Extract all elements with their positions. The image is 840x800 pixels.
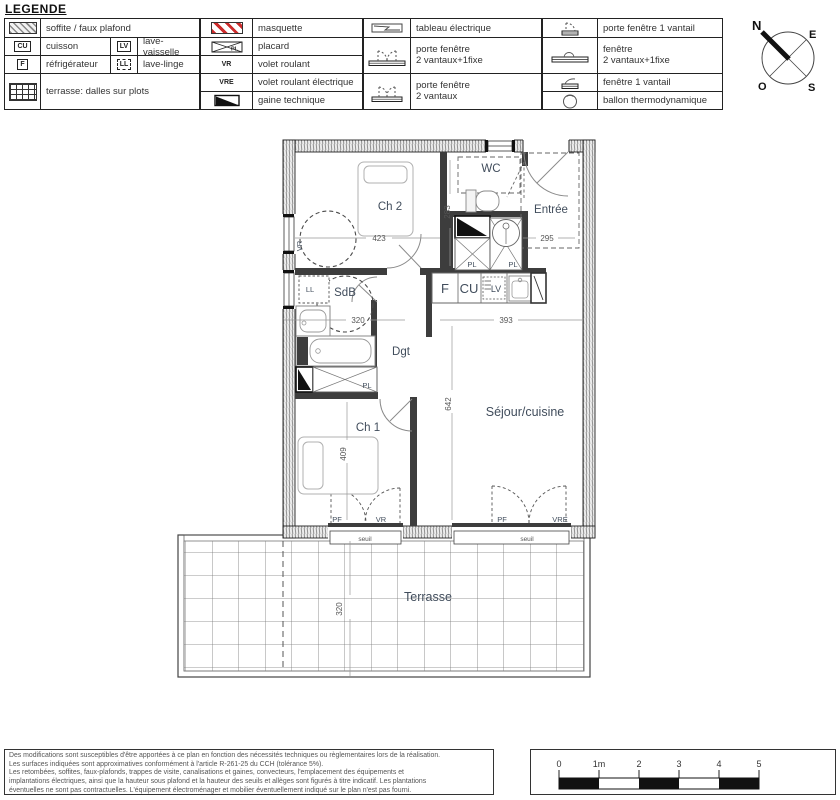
label-text: placard — [258, 41, 289, 52]
tag-f: F — [441, 281, 449, 296]
room-label-terrasse: Terrasse — [404, 590, 452, 604]
tableau-electrique-icon — [364, 19, 411, 38]
legend-label-lave-linge: lave-linge — [138, 56, 200, 74]
legend-table: soffite / faux plafond CU cuisson LV lav… — [4, 18, 723, 110]
disclaimer-line: éventuelles ne sont pas contractuelles. … — [9, 787, 489, 796]
tag-pf-right: PF — [497, 515, 507, 524]
legend-group-3: tableau électrique porte fenêtre2 vantau… — [363, 18, 542, 110]
lv-tag: LV — [117, 41, 131, 52]
label-line1: fenêtre — [603, 45, 670, 56]
tag-vr-window: VR — [295, 240, 304, 251]
placard-icon: PL — [201, 38, 253, 56]
kitchen-counter — [432, 273, 546, 303]
label-text: volet roulant électrique — [258, 77, 354, 88]
tag-vr-left: VR — [376, 515, 387, 524]
gaine-technique-icon — [201, 92, 253, 110]
label-text: porte fenêtre 1 vantail — [603, 23, 695, 34]
legend-group-1: soffite / faux plafond CU cuisson LV lav… — [4, 18, 200, 110]
legend-label-pf2v1f: porte fenêtre2 vantaux+1fixe — [411, 38, 542, 74]
tag-pf-left: PF — [332, 515, 342, 524]
legend-label-lave-vaisselle: lave-vaisselle — [138, 38, 200, 56]
legend-group-4: porte fenêtre 1 vantail fenêtre2 vantaux… — [542, 18, 723, 110]
legend-title: LEGENDE — [5, 2, 67, 16]
label-text: soffite / faux plafond — [46, 23, 131, 34]
tag-pl-hall-right: PL — [508, 260, 517, 269]
bed-ch1 — [298, 437, 378, 494]
label-text: réfrigérateur — [46, 59, 98, 70]
legend-label-volet-roulant: volet roulant — [253, 56, 363, 74]
legend-label-refrigerateur: réfrigérateur — [41, 56, 111, 74]
tag-seuil-left: seuil — [358, 536, 372, 543]
dim-ch2-width: 423 — [372, 234, 386, 243]
pl-tag: PL — [231, 46, 239, 52]
scale-tick-4: 4 — [716, 759, 721, 769]
label-line1: porte fenêtre — [416, 45, 483, 56]
label-line2: 2 vantaux — [416, 92, 470, 103]
masquette-swatch-icon — [201, 19, 253, 38]
legend-label-volet-roulant-electrique: volet roulant électrique — [253, 74, 363, 92]
legend-label-tableau: tableau électrique — [411, 19, 542, 38]
compass-rose: N E O S — [750, 12, 826, 98]
washbasin — [296, 306, 330, 336]
porte-fenetre-2v-icon — [364, 74, 411, 110]
floor-plan-canvas: Ch 2 WC Entrée SdB Dgt Ch 1 Séjour/cuisi… — [0, 128, 840, 748]
lave-linge-icon: LL — [111, 56, 138, 74]
label-text: fenêtre 1 vantail — [603, 77, 671, 88]
cuisson-icon: CU — [5, 38, 41, 56]
scale-tick-1m: 1m — [593, 759, 606, 769]
tag-pl-ch1: PL — [362, 381, 371, 390]
disclaimer-box: Des modifications sont susceptibles d'êt… — [4, 749, 494, 795]
dim-sejour-height: 642 — [444, 397, 453, 411]
ballon-thermodynamique-icon — [543, 92, 598, 110]
legend-label-fen2v1f: fenêtre2 vantaux+1fixe — [598, 38, 723, 74]
label-text: tableau électrique — [416, 23, 491, 34]
tag-seuil-right: seuil — [520, 536, 534, 543]
ll-tag: LL — [117, 59, 132, 70]
toilet — [466, 190, 499, 212]
legend-label-masquette: masquette — [253, 19, 363, 38]
label-text: volet roulant — [258, 59, 310, 70]
scale-tick-3: 3 — [676, 759, 681, 769]
label-text: ballon thermodynamique — [603, 95, 707, 106]
label-text: terrasse: dalles sur plots — [46, 86, 149, 97]
label-text: masquette — [258, 23, 302, 34]
compass-o: O — [758, 81, 767, 93]
ballon-thermodynamique — [493, 220, 520, 247]
label-line2: 2 vantaux+1fixe — [603, 56, 670, 67]
volet-roulant-electrique-icon: VRE — [201, 74, 253, 92]
scale-tick-2: 2 — [636, 759, 641, 769]
legend-label-terrasse: terrasse: dalles sur plots — [41, 74, 200, 110]
disclaimer-line: implantations électriques, ainsi que la … — [9, 778, 489, 787]
disclaimer-line: Les surfaces indiquées sont approximativ… — [9, 761, 489, 770]
legend-label-soffite: soffite / faux plafond — [41, 19, 200, 38]
porte-fenetre-2v1f-icon — [364, 38, 411, 74]
dim-sdb-width: 320 — [351, 316, 365, 325]
label-text: cuisson — [46, 41, 78, 52]
bathtub — [296, 336, 375, 366]
fenetre-2v1f-icon — [543, 38, 598, 74]
scale-tick-0: 0 — [556, 759, 561, 769]
gaine-technique-ch1 — [296, 367, 313, 392]
vre-tag: VRE — [219, 79, 233, 86]
cu-tag: CU — [14, 41, 30, 52]
label-text: lave-vaisselle — [143, 38, 199, 56]
tag-lv: LV — [491, 284, 501, 294]
legend-label-cuisson: cuisson — [41, 38, 111, 56]
tag-pl-hall-left: PL — [467, 260, 476, 269]
bed-ch2 — [358, 162, 413, 236]
refrigerateur-icon: F — [5, 56, 41, 74]
compass-e: E — [809, 29, 816, 41]
legend-group-2: masquette PL placard VR volet roulant VR… — [200, 18, 363, 110]
dim-terrasse-depth: 320 — [335, 602, 344, 616]
tag-vre-right: VRE — [552, 515, 567, 524]
gaine-technique-hall — [455, 216, 490, 238]
room-label-wc: WC — [481, 163, 500, 175]
terrace — [178, 535, 590, 677]
fenetre-1v-icon — [543, 74, 598, 92]
compass-n: N — [752, 18, 761, 33]
room-label-entree: Entrée — [534, 204, 568, 216]
room-label-sejour: Séjour/cuisine — [486, 405, 565, 419]
legend-label-placard: placard — [253, 38, 363, 56]
label-line2: 2 vantaux+1fixe — [416, 56, 483, 67]
disclaimer-line: Les retombées, soffites, faux-plafonds, … — [9, 769, 489, 778]
room-label-ch2: Ch 2 — [378, 201, 402, 213]
label-line1: porte fenêtre — [416, 81, 470, 92]
terrasse-swatch-icon — [5, 74, 41, 110]
volet-roulant-icon: VR — [201, 56, 253, 74]
room-label-sdb: SdB — [334, 287, 356, 299]
dim-kitchen-width: 393 — [499, 316, 513, 325]
north-needle — [762, 32, 789, 59]
room-label-ch1: Ch 1 — [356, 422, 380, 434]
dim-entree-width: 295 — [540, 234, 554, 243]
legend-label-fen1v: fenêtre 1 vantail — [598, 74, 723, 92]
scale-tick-5: 5 — [756, 759, 761, 769]
legend-label-gaine-technique: gaine technique — [253, 92, 363, 110]
disclaimer-line: Des modifications sont susceptibles d'êt… — [9, 752, 489, 761]
soffite-swatch-icon — [5, 19, 41, 38]
scale-bar-box: 0 1m 2 3 4 5 — [530, 749, 836, 795]
label-text: gaine technique — [258, 95, 325, 106]
porte-fenetre-1v-icon — [543, 19, 598, 38]
f-tag: F — [17, 59, 27, 70]
dim-ch2-height: 283 — [443, 205, 452, 219]
tag-ll: LL — [306, 285, 314, 294]
legend-label-pf1v: porte fenêtre 1 vantail — [598, 19, 723, 38]
legend-label-ballon: ballon thermodynamique — [598, 92, 723, 110]
lave-vaisselle-icon: LV — [111, 38, 138, 56]
dim-ch1-height: 409 — [339, 447, 348, 461]
label-text: lave-linge — [143, 59, 184, 70]
compass-s: S — [808, 82, 815, 94]
room-label-dgt: Dgt — [392, 346, 411, 358]
scale-bar: 0 1m 2 3 4 5 — [531, 750, 835, 794]
legend-label-pf2v: porte fenêtre2 vantaux — [411, 74, 542, 110]
vr-tag: VR — [222, 61, 232, 68]
tag-cu: CU — [460, 281, 479, 296]
